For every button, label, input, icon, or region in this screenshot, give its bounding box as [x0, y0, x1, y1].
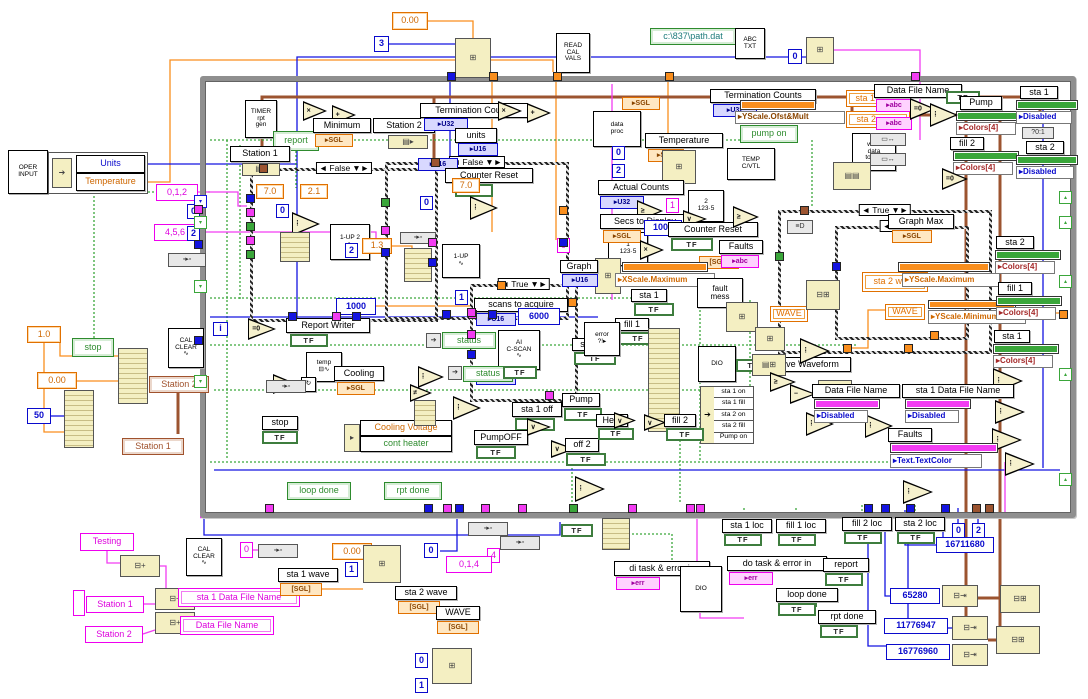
bl-node[interactable]: 0: [276, 204, 289, 218]
build-array-icon[interactable]: ⊞: [363, 545, 401, 583]
bl-node[interactable]: 1: [455, 290, 468, 305]
gr-node[interactable]: loop done: [287, 482, 351, 500]
bl-node[interactable]: 1: [345, 562, 358, 577]
lbl-node[interactable]: fill 2 loc: [842, 517, 892, 531]
wire-tunnel: [881, 504, 890, 513]
wire-tunnel: [906, 504, 915, 513]
unbundle-row: sta 2 on: [714, 410, 753, 421]
dfn-slider[interactable]: [814, 399, 880, 409]
case-next-icon[interactable]: ►: [494, 157, 502, 167]
lbl-node[interactable]: Cooling Voltage: [360, 420, 452, 436]
operator-glyph: ∨: [531, 423, 536, 431]
operator-glyph: ⁞: [457, 404, 459, 411]
operator-glyph: ⁞: [296, 220, 298, 227]
unbundle-by-name[interactable]: ➔sta 1 onsta 1 fillsta 2 onsta 2 fillPum…: [700, 386, 754, 444]
tf-node[interactable]: TF: [778, 603, 816, 616]
build-array-icon[interactable]: ⊞: [455, 38, 491, 78]
slider-fill: [892, 445, 996, 451]
loc-node[interactable]: [SGL]: [398, 601, 440, 614]
plb-node[interactable]: ▸Colors[4]: [993, 355, 1053, 368]
tf-node[interactable]: TF: [825, 573, 863, 586]
pk-node[interactable]: [73, 590, 85, 616]
wire-tunnel: [246, 250, 255, 259]
lbl-node[interactable]: sta 2 wave: [395, 586, 457, 600]
wire-tunnel: [431, 158, 440, 167]
tf-node[interactable]: TF: [566, 453, 606, 466]
concat-icon[interactable]: ▫▸▫: [168, 253, 206, 267]
pk-node[interactable]: Station 2: [85, 626, 143, 643]
loop-tunnel-arrow: ▾: [194, 375, 207, 388]
build-array-icon[interactable]: ⊟⇥: [942, 585, 978, 607]
lbl-node[interactable]: Graph Max: [888, 214, 954, 229]
wire-tunnel: [467, 330, 476, 339]
error-handler-vi[interactable]: error ?!▸: [584, 322, 620, 356]
operator-glyph: =0: [914, 105, 922, 112]
plb-node[interactable]: ▸Disabled: [905, 410, 959, 423]
index-array-icon[interactable]: ⊞: [806, 37, 834, 64]
wire-tunnel: [381, 198, 390, 207]
or-node[interactable]: 0.00: [37, 372, 77, 389]
or-node[interactable]: 1.0: [27, 326, 61, 343]
operator-glyph: ⁞: [1010, 460, 1012, 467]
units-field[interactable]: Units: [76, 155, 145, 173]
string-length-icon[interactable]: ▭↔: [870, 133, 906, 146]
pk2-node[interactable]: Data File Name: [180, 616, 274, 635]
labview-block-diagram: ◄False▼►◄False▼►◄True▼►◄True▼►◄..0▼► OPE…: [0, 0, 1088, 699]
lbl-node[interactable]: Graph: [560, 260, 598, 273]
wire-tunnel: [352, 312, 361, 321]
bl-node[interactable]: 2: [612, 164, 625, 178]
operator-glyph: ⁞: [869, 422, 871, 429]
tri-node[interactable]: ⁞: [903, 480, 933, 504]
pk-node[interactable]: 0: [240, 542, 253, 558]
wire-tunnel: [194, 336, 203, 345]
or-node[interactable]: 2.1: [300, 184, 328, 199]
wire-tunnel: [246, 194, 255, 203]
cluster-arrow-icon[interactable]: ➔: [52, 158, 72, 188]
tf-node[interactable]: TF: [724, 534, 762, 546]
loop-iteration[interactable]: i: [213, 322, 228, 336]
operator-glyph: ×: [644, 246, 648, 253]
wire-tunnel: [246, 236, 255, 245]
gr-node[interactable]: rpt done: [384, 482, 442, 500]
fill1-colors-slider[interactable]: [996, 296, 1062, 306]
loc-node[interactable]: ▸SGL: [315, 134, 353, 147]
tri-node[interactable]: ∨: [527, 418, 551, 436]
operator-glyph: ∨: [555, 445, 560, 453]
loc-node[interactable]: [SGL]: [280, 583, 322, 596]
wire-tunnel: [843, 344, 852, 353]
pump-colors-slider[interactable]: [956, 111, 1022, 121]
bl-node[interactable]: 16776960: [886, 644, 950, 660]
bl-node[interactable]: 65280: [890, 588, 940, 604]
lbl-node[interactable]: fill 2: [664, 414, 696, 427]
bl-node[interactable]: 16711680: [936, 537, 994, 553]
lbl-node[interactable]: do task & error in: [727, 556, 827, 571]
sta1-dfn-slider[interactable]: [905, 399, 971, 409]
bl-node[interactable]: 50: [27, 408, 51, 424]
lbl-node[interactable]: Temperature: [645, 133, 723, 148]
lbl-node[interactable]: Faults: [719, 240, 763, 254]
wire-tunnel: [696, 504, 705, 513]
loc-node[interactable]: ▸SGL: [622, 97, 660, 110]
bundle-cluster-icon[interactable]: ⊟⊞: [996, 626, 1040, 654]
wire-tunnel: [1059, 310, 1068, 319]
case-next-icon[interactable]: ►: [361, 163, 369, 173]
unbundle-icon[interactable]: ▸: [344, 424, 360, 452]
operator-glyph: −: [794, 390, 798, 397]
lbl-node[interactable]: sta 1: [1020, 86, 1058, 99]
operator-glyph: ⁞: [810, 420, 812, 427]
lbl-node[interactable]: sta 1 Data File Name: [902, 384, 1014, 398]
bl-node[interactable]: 0: [420, 196, 433, 210]
lbl-node[interactable]: sta 1 loc: [722, 519, 772, 533]
tri-node[interactable]: ×: [640, 240, 664, 260]
select-icon[interactable]: ?0:1: [1022, 127, 1054, 139]
operator-glyph: ∨: [617, 416, 622, 424]
lbl-node[interactable]: sta 1 wave: [278, 568, 338, 582]
oper-input-icon[interactable]: OPER INPUT: [8, 150, 48, 194]
loop-tunnel-arrow: ▴: [1059, 473, 1072, 486]
wire-tunnel: [467, 308, 476, 317]
tri-node[interactable]: ≥: [733, 206, 759, 228]
wire-tunnel: [259, 164, 268, 173]
lbl-node[interactable]: WAVE: [436, 606, 480, 620]
case-label: False: [329, 163, 350, 173]
tf-node[interactable]: TF: [290, 334, 328, 347]
pk-node[interactable]: 0,1,4: [446, 556, 492, 573]
cal-clear-vi[interactable]: CAL CLEAR ∿: [168, 328, 204, 368]
gr-node[interactable]: pump on: [740, 125, 798, 143]
tf-node[interactable]: TF: [262, 431, 298, 444]
wire-tunnel: [467, 350, 476, 359]
loc-node[interactable]: ▸SGL: [337, 382, 375, 395]
lbl-node[interactable]: fill 1: [998, 282, 1032, 295]
loop-tunnel-arrow: ▾: [194, 216, 207, 229]
status-arrow-icon[interactable]: ➔: [448, 366, 462, 380]
tri-node[interactable]: ⁞: [470, 196, 498, 220]
case-prev-icon[interactable]: ◄: [862, 205, 870, 215]
build-waveform-icon[interactable]: ⊞: [726, 302, 758, 332]
plb-node[interactable]: ▸YScale.Ofst&Mult: [735, 111, 845, 124]
lbl-node[interactable]: Data File Name: [812, 384, 900, 398]
wire-tunnel: [381, 248, 390, 257]
lbl-node[interactable]: Faults: [888, 428, 932, 442]
cal-clear-vi[interactable]: CAL CLEAR ∿: [186, 538, 222, 576]
fill2-colors-slider[interactable]: [953, 151, 1019, 161]
case-next-icon[interactable]: ►: [539, 279, 547, 289]
tf-node[interactable]: TF: [634, 303, 674, 316]
wire-tunnel: [265, 504, 274, 513]
build-array-icon[interactable]: ⊟⇥: [952, 616, 988, 640]
bl-node[interactable]: 0: [788, 49, 802, 64]
lbl-node[interactable]: fill 2: [950, 137, 984, 150]
slider-fill: [900, 264, 988, 270]
sta1-colors-slider[interactable]: [993, 344, 1059, 354]
tri-node[interactable]: =0: [248, 318, 276, 340]
build-array-icon[interactable]: ⊞: [755, 327, 785, 351]
operator-glyph: ≠: [413, 389, 417, 396]
tri-node[interactable]: ⁞: [995, 400, 1025, 424]
build-array-icon[interactable]: ⊞: [432, 648, 472, 684]
xscale-slider[interactable]: [622, 262, 708, 272]
or-node[interactable]: 7.0: [256, 184, 284, 199]
operator-glyph: ∨: [647, 418, 652, 426]
loc-node[interactable]: ▸SGL: [603, 230, 641, 243]
bl-node[interactable]: 1: [415, 678, 428, 693]
tri-node[interactable]: ⁞: [800, 338, 830, 364]
lbl-node[interactable]: off 2: [565, 438, 599, 452]
wire-tunnel: [447, 72, 456, 81]
slider-fill: [907, 401, 969, 407]
tri-node[interactable]: ⁞: [930, 103, 958, 127]
tf-node[interactable]: TF: [778, 534, 816, 546]
bl-node[interactable]: 0: [952, 523, 965, 538]
wire-tunnel: [488, 310, 497, 319]
wire-tunnel: [545, 391, 554, 400]
wire-tunnel: [911, 72, 920, 81]
brn-node[interactable]: Station 1: [122, 438, 184, 455]
lbl-node[interactable]: rpt done: [818, 610, 876, 624]
tf-node[interactable]: TF: [897, 532, 935, 544]
tf-node[interactable]: TF: [844, 532, 882, 544]
unbundle-row: sta 1 on: [714, 387, 753, 398]
plb-node[interactable]: ▸YScale.Maximum: [902, 273, 1000, 287]
wire-tunnel: [428, 238, 437, 247]
merge-icon[interactable]: ▤▤: [833, 162, 871, 190]
bl-node[interactable]: 2: [345, 243, 358, 258]
tf-node[interactable]: TF: [561, 524, 593, 537]
or-node[interactable]: 0.00: [392, 12, 428, 30]
yscale-max-slider[interactable]: [898, 262, 990, 272]
bundle-stack[interactable]: [118, 348, 148, 404]
operator-glyph: ×: [502, 107, 506, 114]
loop-tunnel-arrow: ▴: [1059, 368, 1072, 381]
wire-tunnel: [443, 504, 452, 513]
or-node[interactable]: 7.0: [452, 178, 480, 193]
concat-strings-icon[interactable]: ⊟+: [120, 555, 160, 577]
lbl-node[interactable]: stop: [262, 416, 298, 430]
loc-node[interactable]: ▸abc: [876, 99, 912, 112]
wire-tunnel: [497, 281, 506, 290]
lbl-node[interactable]: PumpOFF: [474, 430, 528, 445]
dio-vi[interactable]: DIO: [698, 346, 736, 382]
concat-icon[interactable]: ▫▸▫: [258, 544, 298, 558]
pk-node[interactable]: Station 1: [86, 596, 144, 613]
loop-tunnel-arrow: ▾: [194, 280, 207, 293]
lbl-node[interactable]: fill 1 loc: [776, 519, 826, 533]
bl-node[interactable]: 3: [374, 36, 389, 52]
bundle-stack[interactable]: [64, 390, 94, 448]
bundle-icon[interactable]: ⊞: [662, 150, 696, 184]
wire-tunnel: [569, 504, 578, 513]
bl-node[interactable]: 6000: [518, 308, 560, 325]
lbl-node[interactable]: Pump: [562, 393, 600, 407]
wire-tunnel: [518, 504, 527, 513]
tf-bundle-stack[interactable]: [602, 518, 630, 550]
loc-node[interactable]: ▸abc: [876, 117, 912, 130]
bl-node[interactable]: 0: [612, 146, 625, 160]
slider-fill: [1018, 157, 1076, 163]
wire-tunnel: [559, 238, 568, 247]
bl-node[interactable]: 2: [972, 523, 985, 538]
one-up-vi[interactable]: 1-UP ∿: [442, 244, 480, 278]
tri-node[interactable]: ∨: [644, 414, 666, 431]
wire-tunnel: [246, 222, 255, 231]
operator-glyph: =0: [252, 325, 260, 332]
temperature-field[interactable]: Temperature: [76, 173, 145, 191]
slider-fill: [742, 102, 814, 108]
tri-node[interactable]: ×: [498, 101, 522, 121]
operator-glyph: ⁞: [422, 373, 424, 380]
lbl-node[interactable]: sta 1: [631, 289, 667, 302]
tri-node[interactable]: ⁞: [575, 476, 605, 502]
index-stack[interactable]: [280, 232, 310, 262]
data-proc-vi[interactable]: data proc: [593, 111, 641, 147]
plb-node[interactable]: ▸Disabled: [1016, 166, 1074, 179]
tf-node[interactable]: TF: [503, 366, 537, 379]
tri-node[interactable]: +: [527, 103, 551, 123]
write-text-file-icon[interactable]: ABC TXT: [735, 28, 765, 59]
tf-node[interactable]: TF: [598, 428, 634, 440]
dio-vi[interactable]: DIO: [680, 566, 722, 612]
plb-node[interactable]: ▸Colors[4]: [995, 261, 1055, 274]
case-label: True: [511, 279, 528, 289]
bl-node[interactable]: 11776947: [884, 618, 948, 634]
lbl-node[interactable]: sta 1: [994, 330, 1030, 343]
plb-node[interactable]: ▸Text.TextColor: [890, 454, 982, 468]
plb-node[interactable]: ▸Colors[4]: [996, 307, 1056, 320]
plb-node[interactable]: ▸Disabled: [1016, 111, 1072, 124]
operator-glyph: ⁞: [474, 204, 476, 211]
lbl-node[interactable]: report: [823, 558, 869, 572]
tri-node[interactable]: =0: [942, 168, 968, 190]
loop-tunnel-arrow: ▴: [1059, 191, 1072, 204]
loc-node[interactable]: ▸err: [729, 572, 773, 585]
wire-p: [107, 551, 120, 563]
tf-node[interactable]: TF: [671, 238, 713, 251]
station2-local[interactable]: ▤▸: [388, 135, 428, 149]
tri-node[interactable]: ⁞: [453, 396, 481, 420]
lbl-node[interactable]: Cooling: [334, 366, 384, 381]
decimate-icon[interactable]: ≡D: [787, 220, 813, 234]
wire-tunnel: [428, 258, 437, 267]
sta2-slider[interactable]: [1016, 155, 1078, 165]
sta1-slider[interactable]: [1016, 100, 1078, 110]
loc-node[interactable]: ▸SGL: [892, 230, 932, 243]
faults-slider[interactable]: [890, 443, 998, 453]
lbl-node[interactable]: Minimum: [313, 118, 371, 133]
build-array-icon[interactable]: ⊟⇥: [952, 644, 988, 666]
tri-node[interactable]: ⁞: [1005, 452, 1035, 476]
wire-tunnel: [985, 504, 994, 513]
c-scan-vi[interactable]: AI C-SCAN ∿: [498, 330, 540, 370]
or2-node[interactable]: WAVE: [885, 304, 925, 320]
lbl-node[interactable]: fill 1: [615, 318, 649, 331]
wire-tunnel: [775, 252, 784, 261]
index-icon[interactable]: ⊟⊞: [806, 280, 840, 310]
wire-tunnel: [941, 504, 950, 513]
or2-node[interactable]: WAVE: [770, 306, 808, 322]
case-selector[interactable]: ◄False▼►: [316, 162, 372, 174]
concat-icon[interactable]: ▫▸▫: [468, 522, 508, 536]
bundle-cluster-icon[interactable]: ⊟⊞: [1000, 585, 1040, 613]
loc-node[interactable]: ▸abc: [721, 255, 759, 268]
wire-tunnel: [424, 504, 433, 513]
chevron-down-icon[interactable]: ▼: [485, 157, 493, 167]
lbl-node[interactable]: loop done: [776, 588, 838, 602]
loc-node[interactable]: [SGL]: [437, 621, 479, 634]
unbundle-row: Pump on: [714, 433, 753, 443]
plb-node[interactable]: ▸Disabled: [814, 410, 868, 423]
case-prev-icon[interactable]: ◄: [319, 163, 327, 173]
case-label: False: [462, 157, 483, 167]
tf-node[interactable]: TF: [820, 625, 858, 638]
concat-icon[interactable]: ▫▸▫: [500, 536, 540, 550]
wire-tunnel: [381, 226, 390, 235]
wire-tunnel: [864, 504, 873, 513]
tri-node[interactable]: ∨: [614, 412, 636, 429]
lbl-node[interactable]: sta 2: [1026, 141, 1064, 154]
wire-tunnel: [904, 344, 913, 353]
lbl-node[interactable]: units: [455, 128, 497, 143]
index-stack[interactable]: [414, 400, 436, 426]
lbl-node[interactable]: sta 2: [996, 236, 1034, 249]
wire-tunnel: [332, 312, 341, 321]
string-length-icon[interactable]: ▭↔: [870, 153, 906, 166]
sta2-colors-slider[interactable]: [995, 250, 1061, 260]
plb-node[interactable]: ▸Colors[4]: [956, 122, 1016, 135]
wire-tunnel: [568, 298, 577, 307]
tf-node[interactable]: TF: [476, 446, 516, 459]
read-cal-vals-vi[interactable]: READ CAL VALS: [556, 33, 590, 73]
chevron-down-icon[interactable]: ▼: [530, 279, 538, 289]
wire-p: [143, 630, 155, 634]
gr-node[interactable]: stop: [72, 338, 114, 357]
slider-fill: [958, 113, 1020, 119]
bl-node[interactable]: 0: [424, 543, 438, 558]
loop-tunnel-arrow: ▴: [1059, 216, 1072, 229]
lbl-node[interactable]: Station 1: [230, 146, 290, 162]
lbl-node[interactable]: Actual Counts: [598, 180, 684, 195]
pk-node[interactable]: 0,1,2: [156, 184, 198, 201]
concat-icon[interactable]: ▫▸▫: [266, 380, 306, 393]
lbl-node[interactable]: cont heater: [360, 436, 452, 452]
slider-fill: [998, 298, 1060, 304]
case-label: True: [872, 205, 889, 215]
path-constant[interactable]: c:\837\path.dat: [650, 28, 736, 45]
loc-node[interactable]: ▸U16: [458, 143, 498, 156]
operator-glyph: =0: [946, 175, 954, 182]
tf-node[interactable]: TF: [666, 428, 704, 441]
wire-tunnel: [832, 262, 841, 271]
slider-fill: [995, 346, 1057, 352]
operator-glyph: ⁞: [580, 485, 582, 492]
lbl-node[interactable]: sta 1 off: [512, 402, 562, 417]
ofst-mult-slider[interactable]: [740, 100, 816, 110]
pk-node[interactable]: 1: [666, 198, 679, 213]
loc-node[interactable]: ▸err: [616, 577, 660, 590]
loc-node[interactable]: ▸U16: [562, 274, 598, 287]
chevron-down-icon[interactable]: ▼: [352, 163, 360, 173]
wire-tunnel: [930, 331, 939, 340]
lbl-node[interactable]: Pump: [960, 96, 1002, 110]
status-arrow-icon[interactable]: ➔: [426, 333, 441, 348]
temp-cvtl-vi[interactable]: TEMP C/VTL: [727, 148, 775, 180]
lbl-node[interactable]: sta 2 loc: [895, 517, 945, 531]
bl-node[interactable]: 0: [415, 653, 428, 668]
pk-node[interactable]: Testing: [80, 533, 134, 551]
